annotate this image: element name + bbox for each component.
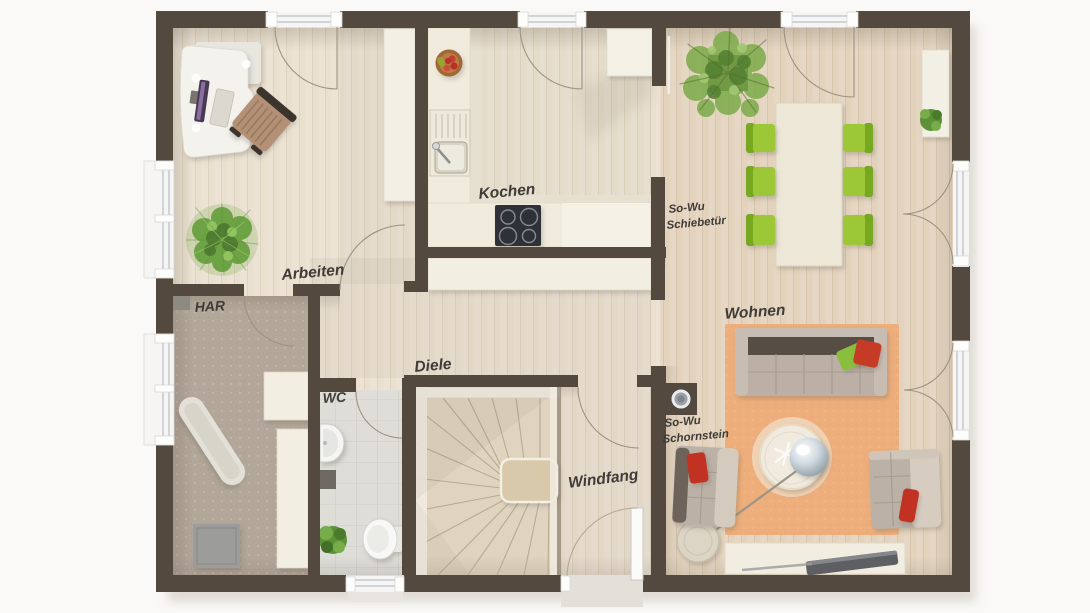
svg-text:Diele: Diele xyxy=(414,356,453,376)
svg-text:WC: WC xyxy=(322,389,347,406)
svg-text:HAR: HAR xyxy=(194,297,226,315)
